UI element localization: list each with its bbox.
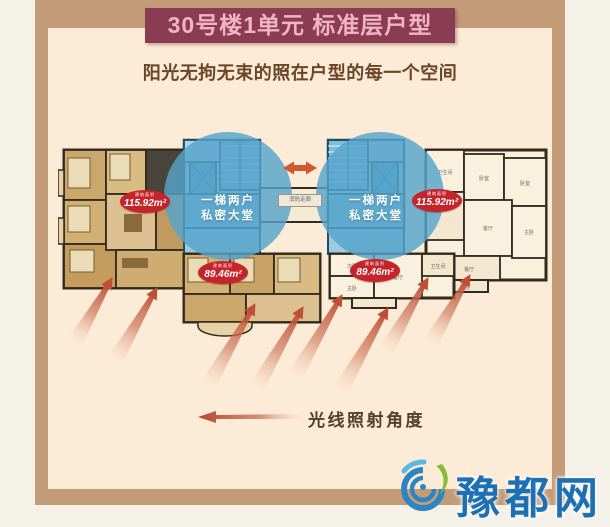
bed-icon [68,206,90,232]
light-angle-label: 光线照射角度 [308,406,425,431]
area-value: 89.46m² [350,267,400,278]
area-value: 115.92m² [120,198,170,209]
balcony [58,218,64,244]
room-label: 卧室 [520,180,530,187]
area-badge-left-large: 建筑面积 115.92m² [120,190,170,213]
watermark-text: 豫都网 [456,462,603,526]
area-value: 115.92m² [412,197,462,208]
fire-corridor-label: 消防走廊 [278,194,322,207]
watermark-swirl-icon [390,456,456,522]
title-banner: 30号楼1单元 标准层户型 [145,8,455,43]
room-label: 卫生间 [430,263,445,270]
sofa-icon [122,258,148,268]
legend-arrow-icon [196,408,306,426]
bed-icon [110,154,130,180]
area-prefix: 建筑面积 [350,259,400,267]
room-label: 主卧 [524,229,534,236]
area-value: 89.46m² [198,269,248,280]
bed-icon [68,158,90,188]
area-prefix: 建筑面积 [412,189,462,197]
page-title: 30号楼1单元 标准层户型 [168,12,433,38]
area-badge-left-small: 建筑面积 89.46m² [198,261,248,284]
bed-icon [278,258,300,282]
watermark: 豫都网 [390,450,608,524]
lobby-caption-right: 一梯两户 私密大堂 [337,194,415,224]
room-label: 餐厅 [464,266,474,273]
room-label: 卧室 [479,175,489,182]
floorplan-drawing: 卧室 卧室 卫生间 客厅 主卧 餐厅 阳台 [58,132,554,402]
area-badge-right-large: 建筑面积 115.92m² [412,189,462,212]
promo-poster: 30号楼1单元 标准层户型 阳光无拘无束的照在户型的每一个空间 [0,0,610,527]
unit-left-large [58,150,184,288]
area-prefix: 建筑面积 [120,190,170,198]
balcony [58,170,64,196]
lobby-caption-left: 一梯两户 私密大堂 [189,194,267,224]
area-prefix: 建筑面积 [198,261,248,269]
double-arrow-icon [283,162,317,175]
page-subtitle: 阳光无拘无束的照在户型的每一个空间 [48,59,552,85]
room-label: 主卧 [347,285,357,292]
table-icon [124,214,142,232]
balcony [352,298,396,308]
area-badge-right-small: 建筑面积 89.46m² [350,259,400,282]
bed-icon [70,250,94,272]
room-label: 客厅 [483,225,493,232]
